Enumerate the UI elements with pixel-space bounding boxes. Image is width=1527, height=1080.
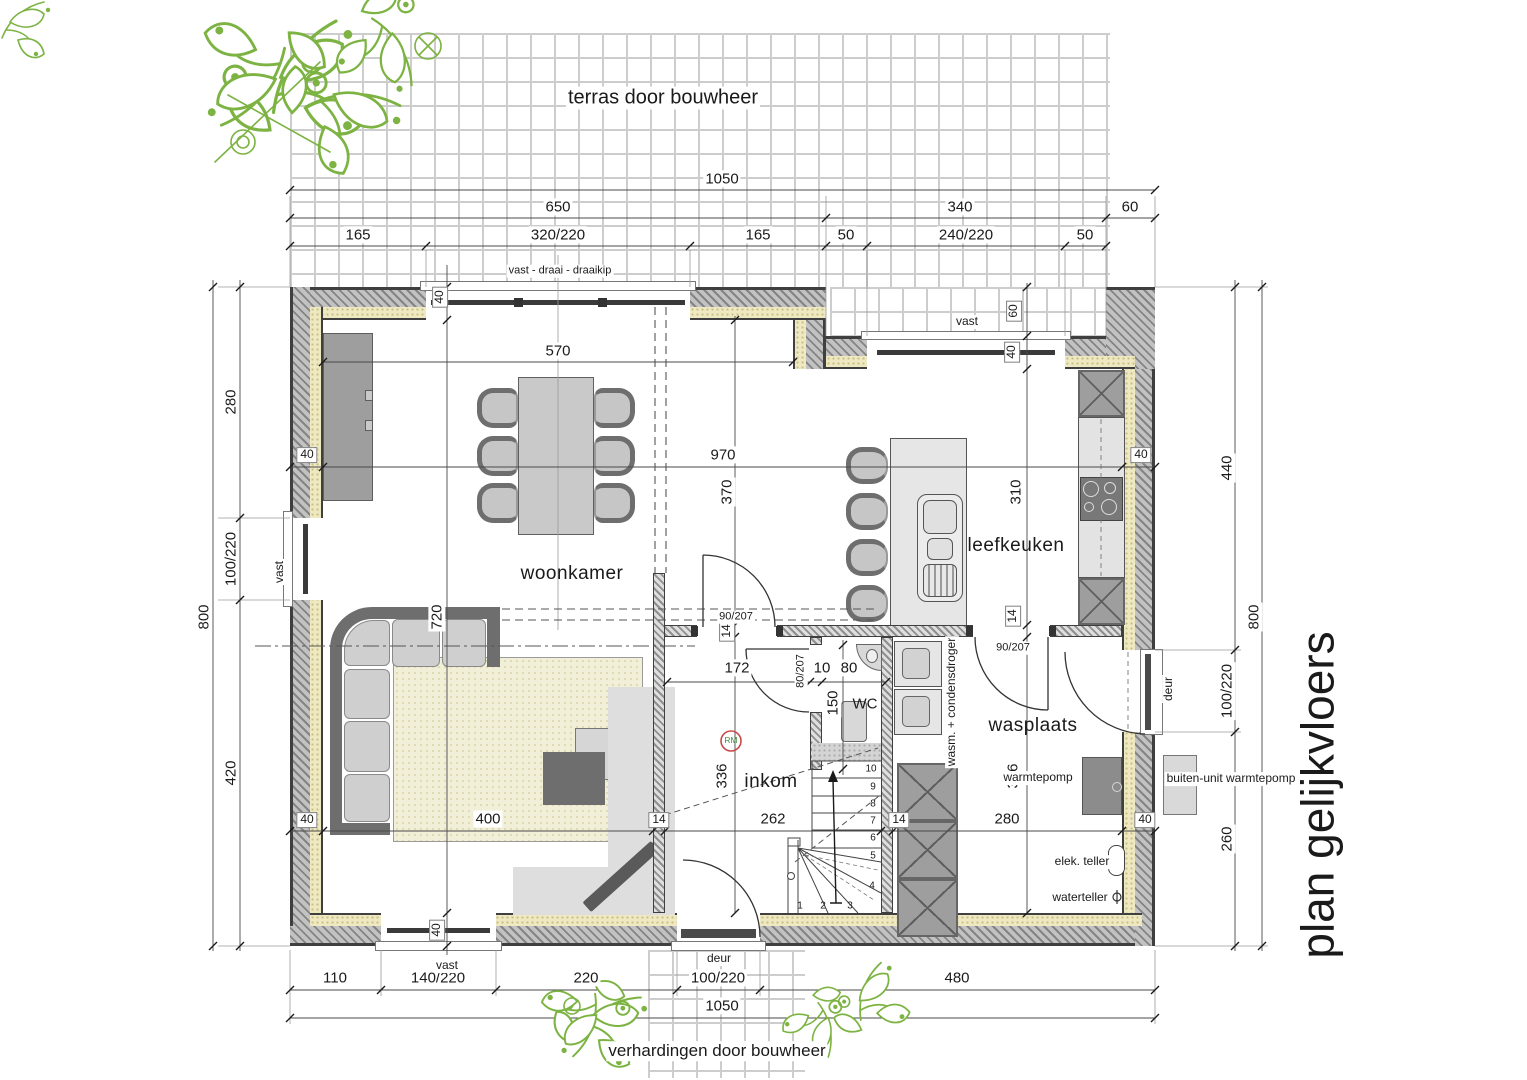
stairs-lines [788, 761, 881, 913]
dim-262: 262 [758, 810, 787, 827]
dim-172: 172 [722, 659, 751, 676]
kitchen-tall-unit [1078, 370, 1125, 417]
stair-step-1: 1 [796, 900, 804, 912]
dim-top-60: 60 [1120, 198, 1141, 215]
dim-top-165a: 165 [343, 226, 372, 243]
door-90-207-label: 90/207 [717, 611, 755, 624]
sofa-arm-right [487, 607, 500, 667]
dim-top-window: 320/220 [529, 226, 587, 243]
electric-meter-label: elek. teller [1053, 855, 1112, 869]
verhardingen-label: verhardingen door bouwheer [606, 1041, 827, 1061]
window-top-glass [431, 300, 685, 305]
dim-top-340: 340 [945, 198, 974, 215]
insulation-niche-right [1065, 356, 1106, 369]
plan-title: plan gelijkvloers [1292, 629, 1345, 960]
window-niche-sill [861, 331, 1071, 340]
dim-310: 310 [1007, 477, 1024, 506]
dim-10: 10 [812, 659, 833, 676]
dim-wall-40: 40 [429, 919, 445, 940]
dim-400: 400 [473, 810, 502, 827]
room-leefkeuken: leefkeuken [966, 535, 1067, 557]
outdoor-unit-label: buiten-unit warmtepomp [1165, 772, 1298, 786]
dining-chair [594, 388, 635, 428]
cooktop-burner [1101, 499, 1117, 515]
stairs-arrow-head [828, 770, 838, 782]
dim-370: 370 [718, 477, 735, 506]
dim-top-50a: 50 [836, 226, 857, 243]
room-wc: WC [851, 695, 880, 712]
stair-step-3: 3 [846, 900, 854, 912]
dim-wall-40: 40 [432, 286, 448, 307]
dim-720: 720 [428, 602, 445, 631]
dim-wall-14: 14 [719, 620, 735, 641]
stair-step-10: 10 [864, 763, 877, 775]
insulation-left [310, 307, 323, 926]
dim-bottom-220: 220 [571, 969, 600, 986]
dim-left-280: 280 [222, 387, 239, 416]
dim-wall-14: 14 [1005, 605, 1021, 626]
dim-right-440: 440 [1218, 453, 1235, 482]
door-90-207-label: 90/207 [994, 642, 1032, 655]
wall-livingroom-hall [653, 573, 665, 913]
stair-step-8: 8 [869, 798, 877, 810]
side-door-leaf [1145, 654, 1151, 730]
sofa-cushion [344, 669, 390, 719]
sofa-cushion [442, 619, 486, 667]
stair-step-5: 5 [869, 850, 877, 862]
insulation-corner-ne [1106, 356, 1135, 369]
stairs-dashed [805, 855, 878, 900]
wall-niche-return [806, 320, 826, 369]
washer-dryer-label: wasm. + condensdroger [945, 636, 959, 768]
sink-bowl [923, 500, 957, 534]
dim-wall-40: 40 [1130, 447, 1151, 463]
front-door-label: deur [705, 952, 733, 966]
wall-left [290, 287, 310, 946]
cabinet-handle [365, 420, 373, 431]
sofa-back-left [330, 660, 342, 823]
dim-wall-14: 14 [888, 812, 909, 828]
dim-wall-40: 40 [1004, 341, 1020, 362]
front-door-sill [671, 941, 766, 951]
front-door-leaf [681, 929, 756, 938]
window-mullion [598, 298, 607, 307]
wc-landing [812, 743, 881, 761]
cooktop-burner [1104, 482, 1116, 494]
dining-chair [594, 436, 635, 476]
dim-wall-40: 40 [1134, 812, 1155, 828]
cooktop-burner [1083, 481, 1099, 497]
dim-right-total: 800 [1245, 602, 1262, 631]
dim-970: 970 [708, 446, 737, 463]
insulation-niche-return [793, 320, 806, 369]
dining-chair [477, 483, 518, 523]
window-left-glass [303, 524, 308, 594]
dim-top-total: 1050 [703, 170, 740, 187]
sofa-cushion [344, 774, 390, 822]
dim-570: 570 [543, 342, 572, 359]
door-80-207-label: 80/207 [795, 652, 808, 690]
wall-niche-right [1065, 336, 1106, 356]
storage-cabinet [897, 821, 958, 879]
cooktop-burner [1084, 502, 1094, 512]
dim-left-window: 100/220 [222, 530, 239, 588]
dim-bottom-480: 480 [942, 969, 971, 986]
dim-left-total: 800 [195, 602, 212, 631]
storage-cabinet [897, 879, 958, 937]
stair-step-4: 4 [868, 880, 876, 892]
window-niche-glass [877, 350, 1055, 355]
dim-wall-40: 40 [296, 447, 317, 463]
dim-top-650: 650 [543, 198, 572, 215]
dim-left-420: 420 [222, 758, 239, 787]
dryer-door [902, 696, 930, 727]
room-woonkamer: woonkamer [519, 563, 626, 585]
stairs-newel [788, 873, 795, 880]
stair-step-2: 2 [819, 900, 827, 912]
door-jamb [691, 626, 698, 636]
dim-wall-14: 14 [648, 812, 669, 828]
dim-336-hall: 336 [713, 761, 730, 790]
dim-bottom-110: 110 [321, 969, 349, 986]
window-bottom-vast: vast [434, 959, 460, 973]
wall-hall-top-c [1050, 625, 1122, 637]
water-meter-symbol [1113, 893, 1121, 901]
dim-80: 80 [839, 659, 860, 676]
washer-door [902, 648, 930, 679]
terras-tiles-top [290, 33, 1110, 287]
washbasin-bowl [866, 649, 878, 663]
window-mullion [514, 298, 523, 307]
dim-150: 150 [824, 688, 841, 717]
wall-wc-left-b [810, 712, 822, 770]
stair-step-7: 7 [869, 815, 877, 827]
window-left-vast: vast [273, 559, 287, 585]
dim-bottom-door: 100/220 [689, 969, 747, 986]
wall-right [1135, 287, 1155, 946]
insulation-niche-left [826, 356, 867, 369]
coffee-table [543, 752, 605, 805]
dim-right-260: 260 [1218, 824, 1235, 853]
sink-drainer [923, 564, 957, 597]
dim-right-door: 100/220 [1218, 662, 1235, 720]
door-jamb [966, 626, 973, 636]
dining-chair [477, 388, 518, 428]
wall-cabinet [323, 333, 373, 501]
water-meter-label: waterteller [1050, 891, 1109, 905]
kitchen-tall-unit [1078, 578, 1125, 625]
wall-hall-top-b [777, 625, 973, 637]
heat-pump-label: warmtepomp [1001, 771, 1074, 785]
terras-label: terras door bouwheer [566, 87, 760, 110]
smoke-detector-label: RM [724, 736, 737, 746]
dim-niche-60: 60 [1006, 300, 1022, 321]
bar-stool [846, 493, 888, 530]
sofa-cushion [344, 721, 390, 772]
dim-top-165b: 165 [743, 226, 772, 243]
niche-window-vast: vast [954, 315, 980, 329]
dim-top-50b: 50 [1075, 226, 1096, 243]
wall-wc-left-a [810, 637, 822, 645]
door-jamb [776, 626, 783, 636]
dim-280: 280 [992, 810, 1021, 827]
window-bottom-sill [375, 941, 502, 951]
dim-wall-40: 40 [296, 812, 317, 828]
dining-chair [477, 436, 518, 476]
sink-bowl-small [927, 538, 953, 560]
dim-bottom-total: 1050 [703, 997, 740, 1014]
room-inkom: inkom [742, 771, 799, 793]
stair-step-9: 9 [869, 781, 877, 793]
floor-plan: terras door bouwheer 1050 650 340 60 165… [0, 0, 1527, 1080]
window-top-sill [420, 281, 696, 291]
stair-step-6: 6 [869, 832, 877, 844]
door-jamb [1049, 626, 1056, 636]
bar-stool [846, 447, 888, 484]
cabinet-handle [365, 390, 373, 401]
headroom-dashed [665, 748, 879, 862]
dining-chair [594, 483, 635, 523]
dim-top-niche-window: 240/220 [937, 226, 995, 243]
wall-stairs-right [881, 637, 893, 913]
stairs-arrow-line [830, 780, 842, 903]
side-door-panel [1140, 649, 1163, 735]
side-door-label: deur [1162, 675, 1176, 703]
window-type-label: vast - draai - draaikip [507, 265, 614, 278]
room-wasplaats: wasplaats [987, 715, 1080, 737]
heat-pump-port [1112, 782, 1122, 792]
bar-stool [846, 585, 888, 622]
bar-stool [846, 539, 888, 576]
dining-table [518, 377, 594, 535]
sofa-arm-bottom [330, 823, 390, 835]
